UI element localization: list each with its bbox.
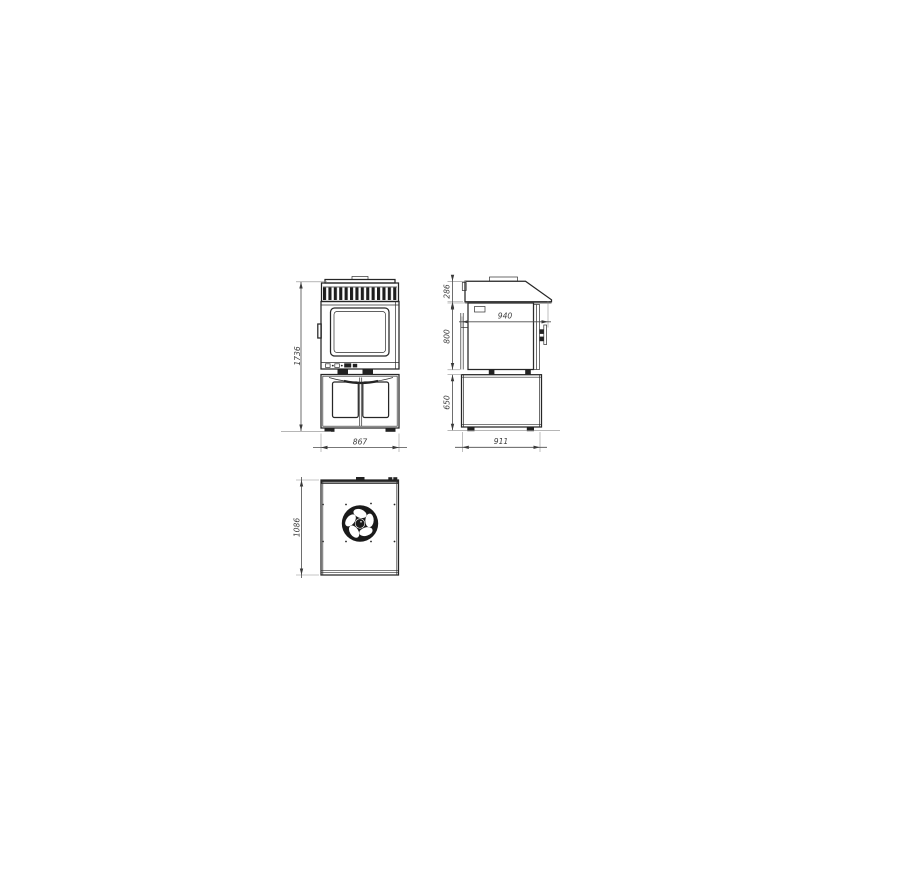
dim-arrow (299, 425, 302, 432)
technical-drawing-canvas: 1736 867 (0, 0, 900, 885)
dim-side-base-height-label: 650 (443, 395, 452, 410)
rear-view: 1086 (293, 477, 399, 578)
dim-front-height-label: 1736 (293, 346, 302, 365)
front-door-window-outer (331, 308, 390, 356)
oven-foot (338, 369, 349, 374)
dim-arrow (451, 375, 454, 382)
dim-arrow (451, 275, 454, 282)
hood-outline (465, 281, 552, 302)
control-panel-block (344, 363, 351, 367)
dim-side-hood-height-label: 286 (443, 284, 452, 299)
dim-arrow (451, 424, 454, 431)
dim-arrow (300, 480, 303, 487)
dim-arrow (542, 320, 549, 323)
side-base-cabinet (462, 375, 542, 432)
rear-top-bump (356, 477, 365, 480)
dim-side-base-height: 650 (443, 375, 561, 431)
dim-arrow (321, 446, 328, 449)
dim-arrow (300, 569, 303, 576)
dim-arrow (393, 446, 400, 449)
side-base-outline (462, 375, 542, 427)
handle-hinge-block (540, 329, 544, 334)
fan-icon (342, 505, 378, 541)
dim-rear-height: 1086 (293, 477, 320, 578)
control-knob (335, 364, 340, 368)
dim-side-body-height-label: 800 (443, 329, 452, 344)
side-oven-foot (489, 370, 495, 375)
dim-arrow (451, 363, 454, 370)
base-foot (386, 428, 396, 432)
dim-rear-height-label: 1086 (293, 518, 302, 537)
dim-front-width: 867 (313, 434, 407, 453)
rear-top-block (393, 477, 397, 480)
front-grille-slats (323, 288, 397, 301)
control-dot (341, 365, 343, 367)
dim-side-body-height: 800 (443, 303, 467, 370)
front-door-handle (318, 324, 321, 338)
dim-side-base-depth-label: 911 (494, 437, 509, 446)
front-base-cabinet (321, 375, 399, 432)
dim-arrow (451, 303, 454, 310)
side-hood (462, 281, 551, 303)
front-view: 1736 867 (281, 277, 407, 453)
rear-top-block (388, 477, 392, 480)
side-view: 286 940 800 650 (443, 275, 561, 452)
dim-side-depth-label: 940 (498, 312, 513, 321)
front-grille (322, 283, 399, 302)
oven-foot (363, 369, 374, 374)
control-panel-block (353, 364, 357, 368)
side-vent-box (475, 307, 486, 313)
handle-bar (544, 325, 547, 345)
dim-arrow (534, 446, 541, 449)
side-door-handle (540, 325, 547, 345)
front-control-strip (321, 363, 399, 368)
handle-hinge-block (540, 337, 544, 342)
base-right-door (363, 382, 389, 418)
control-dot (332, 365, 334, 367)
dim-arrow (299, 282, 302, 289)
side-oven-foot (525, 370, 531, 375)
fan-hub-mark (360, 521, 362, 523)
base-left-door (333, 382, 359, 418)
dim-side-base-depth: 911 (455, 432, 547, 452)
dim-front-height: 1736 (281, 282, 331, 432)
oven-dimension-drawing: 1736 867 (0, 0, 900, 885)
dim-side-depth: 940 (459, 301, 551, 328)
fan-hub (355, 519, 365, 529)
front-oven-body (318, 302, 399, 375)
control-knob (326, 364, 331, 368)
dim-front-width-label: 867 (353, 438, 368, 447)
dim-arrow (462, 446, 469, 449)
side-chimney (490, 277, 518, 281)
front-door-window-inner (334, 312, 386, 353)
